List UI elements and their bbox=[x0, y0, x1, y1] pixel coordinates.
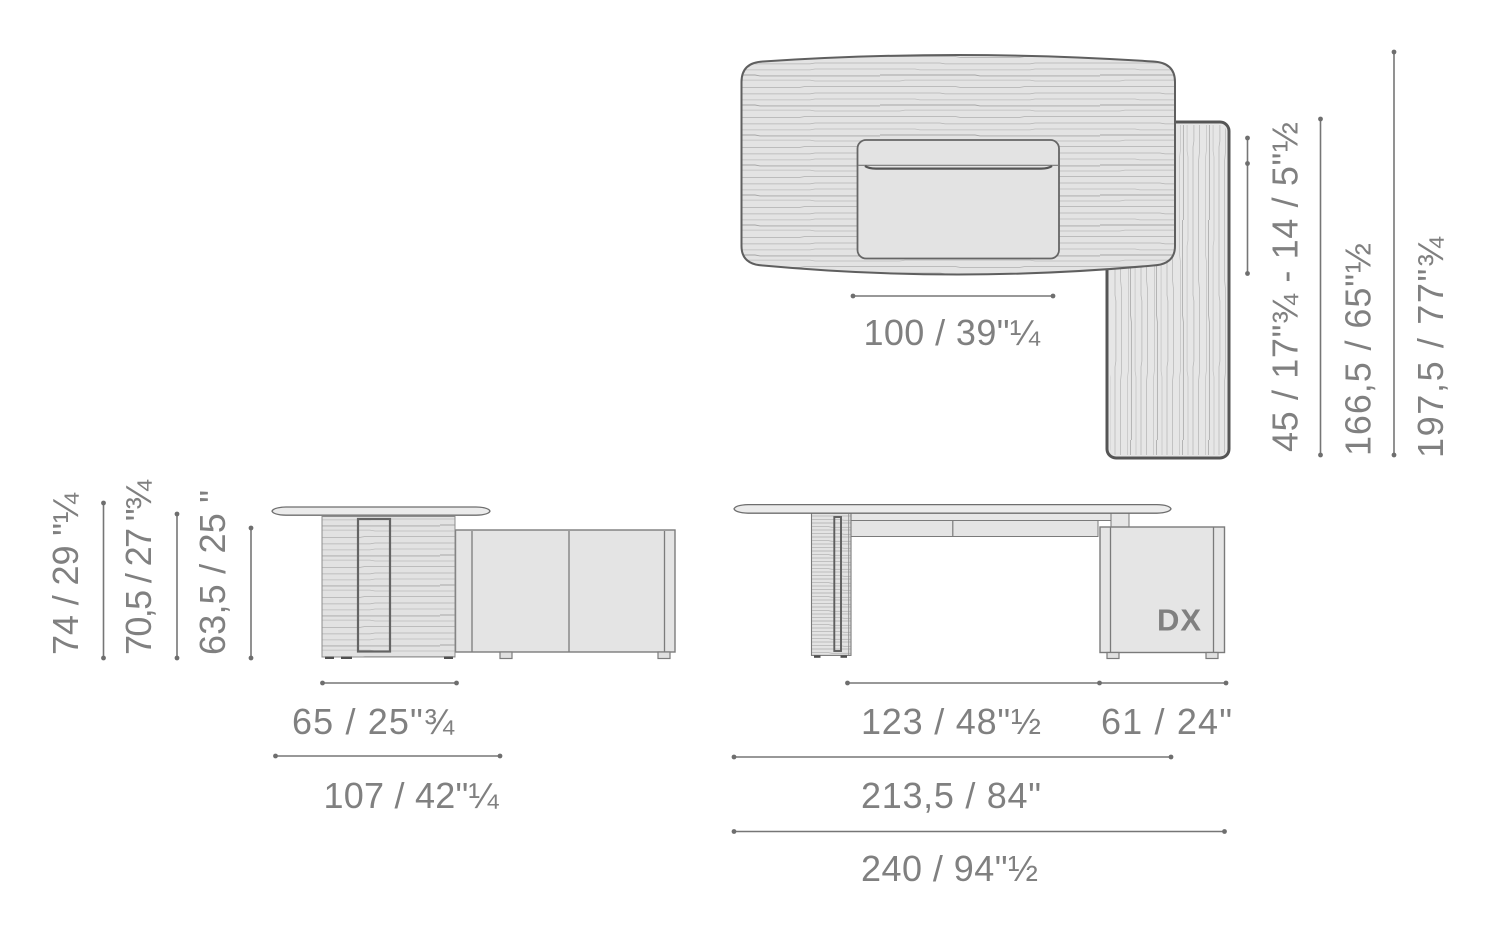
svg-text:74 / 29 "¼: 74 / 29 "¼ bbox=[45, 492, 86, 655]
svg-text:213,5 / 84": 213,5 / 84" bbox=[861, 775, 1041, 816]
svg-text:107 / 42"¼: 107 / 42"¼ bbox=[324, 775, 500, 816]
svg-text:240 / 94"½: 240 / 94"½ bbox=[861, 848, 1038, 889]
svg-text:166,5 / 65"½: 166,5 / 65"½ bbox=[1338, 243, 1379, 456]
svg-text:45 / 17"¾ - 14 / 5"½: 45 / 17"¾ - 14 / 5"½ bbox=[1265, 122, 1306, 452]
svg-text:70,5 / 27 "¾: 70,5 / 27 "¾ bbox=[118, 479, 159, 655]
svg-text:123 / 48"½: 123 / 48"½ bbox=[861, 701, 1041, 742]
svg-text:65 / 25"¾: 65 / 25"¾ bbox=[292, 701, 455, 742]
svg-text:197,5 / 77"¾: 197,5 / 77"¾ bbox=[1410, 236, 1451, 458]
svg-text:61 / 24": 61 / 24" bbox=[1101, 701, 1232, 742]
svg-text:DX: DX bbox=[1157, 603, 1202, 638]
svg-text:100 / 39"¼: 100 / 39"¼ bbox=[863, 312, 1040, 353]
svg-text:63,5 / 25 ": 63,5 / 25 " bbox=[192, 490, 233, 655]
